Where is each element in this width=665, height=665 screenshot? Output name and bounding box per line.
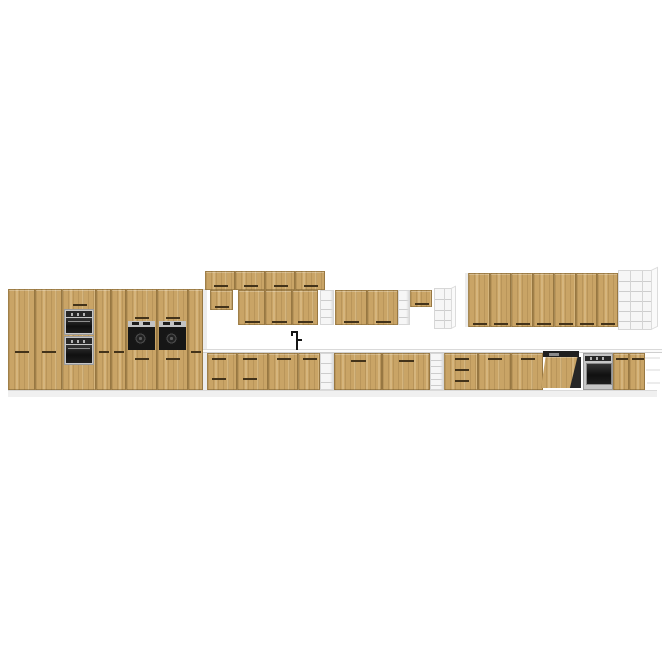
door-handle-groove bbox=[135, 317, 149, 319]
door-handle-groove bbox=[191, 351, 201, 353]
door-handle-groove bbox=[114, 351, 124, 353]
appliance-handle bbox=[68, 348, 90, 349]
wall-cabinet-door bbox=[554, 273, 576, 327]
base-cabinet-door bbox=[629, 353, 645, 390]
door-handle-groove bbox=[15, 351, 29, 353]
wall-cabinet-door bbox=[576, 273, 597, 327]
kitchen-product-image bbox=[0, 0, 665, 665]
base-drawer-stack bbox=[444, 353, 478, 390]
door-handle-groove bbox=[415, 303, 429, 305]
base-cabinet-door-wide bbox=[382, 353, 430, 390]
open-shelf-column bbox=[398, 290, 410, 325]
bookshelf-end-unit bbox=[618, 270, 652, 330]
door-handle-groove bbox=[632, 358, 644, 360]
door-handle-groove bbox=[455, 369, 469, 371]
door-handle-groove bbox=[212, 378, 226, 380]
door-handle-groove bbox=[274, 285, 288, 287]
door-handle-groove bbox=[537, 323, 551, 325]
shelf-flank bbox=[451, 286, 456, 329]
open-shelf-end-unit bbox=[434, 288, 452, 329]
shelf-line bbox=[619, 291, 651, 292]
top-wall-cabinet-door bbox=[295, 271, 325, 290]
tall-cabinet-door bbox=[111, 289, 126, 390]
door-handle-groove bbox=[42, 351, 56, 353]
compact-oven bbox=[159, 321, 186, 352]
wall-cabinet-door bbox=[335, 290, 367, 325]
tall-cabinet-door bbox=[96, 289, 111, 390]
door-handle-groove bbox=[399, 360, 414, 362]
wall-cabinet-door bbox=[367, 290, 398, 325]
door-handle-groove bbox=[473, 323, 487, 325]
door-handle-groove bbox=[245, 321, 260, 323]
base-drawer-unit bbox=[207, 353, 237, 390]
door-handle-groove bbox=[135, 358, 149, 360]
shelf-line bbox=[435, 299, 451, 300]
base-cabinet-door bbox=[511, 353, 543, 390]
door-handle-groove bbox=[166, 358, 180, 360]
appliance-button bbox=[174, 322, 181, 325]
shelf-side-shade bbox=[406, 291, 409, 324]
door-handle-groove bbox=[455, 358, 469, 360]
base-cabinet-door bbox=[268, 353, 298, 390]
appliance-control-strip bbox=[66, 338, 92, 344]
door-handle-groove bbox=[298, 321, 313, 323]
appliance-button bbox=[132, 322, 139, 325]
door-handle-groove bbox=[277, 358, 291, 360]
wall-cabinet-half-height bbox=[410, 290, 432, 307]
door-handle-groove bbox=[455, 380, 469, 382]
oven-knob-reflection bbox=[134, 332, 147, 345]
door-handle-groove bbox=[616, 358, 628, 360]
shelf-flank bbox=[651, 267, 658, 330]
end-shelf-ledge bbox=[647, 382, 660, 384]
end-shelf-ledge bbox=[646, 369, 660, 371]
appliance-handle bbox=[68, 321, 90, 322]
appliance-button bbox=[163, 322, 170, 325]
wall-cabinet-door bbox=[597, 273, 618, 327]
door-handle-groove bbox=[215, 306, 229, 308]
appliance-control-strip bbox=[66, 311, 92, 317]
open-shelf-column bbox=[430, 353, 444, 390]
faucet-spout-tip bbox=[291, 333, 293, 336]
shelf-line bbox=[619, 321, 651, 322]
microwave-oven bbox=[64, 309, 94, 335]
plinth bbox=[8, 390, 657, 397]
sink-base-unit bbox=[298, 353, 320, 390]
shelf-divider bbox=[444, 289, 445, 328]
dishwasher-display bbox=[549, 353, 559, 356]
appliance-button bbox=[143, 322, 150, 325]
wall-cabinet-door bbox=[292, 290, 318, 325]
door-handle-groove bbox=[99, 351, 109, 353]
faucet-handle bbox=[298, 339, 302, 341]
door-handle-groove bbox=[516, 323, 530, 325]
top-wall-cabinet-door bbox=[205, 271, 235, 290]
base-cabinet-door-wide bbox=[334, 353, 382, 390]
base-cabinet-door bbox=[613, 353, 629, 390]
door-handle-groove bbox=[601, 323, 615, 325]
door-handle-groove bbox=[73, 304, 87, 306]
base-drawer-unit bbox=[237, 353, 268, 390]
open-shelf-column bbox=[320, 353, 334, 390]
shelf-side-shade bbox=[440, 354, 443, 389]
door-handle-groove bbox=[304, 285, 318, 287]
wall-cabinet-door bbox=[511, 273, 533, 327]
shelf-line bbox=[619, 301, 651, 302]
faucet-stem bbox=[296, 333, 298, 350]
shelf-divider bbox=[642, 271, 643, 329]
tall-cabinet-door bbox=[8, 289, 35, 390]
wall-cabinet-door bbox=[490, 273, 511, 327]
door-handle-groove bbox=[244, 285, 258, 287]
oven-glass-door bbox=[586, 363, 612, 385]
door-handle-groove bbox=[243, 358, 257, 360]
door-handle-groove bbox=[559, 323, 573, 325]
oven-knob-reflection bbox=[165, 332, 178, 345]
oven-control-strip bbox=[585, 356, 611, 361]
shelf-side-shade bbox=[330, 291, 333, 324]
shelf-line bbox=[435, 320, 451, 321]
end-shelf-ledge bbox=[645, 357, 660, 359]
top-wall-cabinet-door bbox=[265, 271, 295, 290]
compact-oven bbox=[128, 321, 155, 352]
wall-cabinet-door bbox=[238, 290, 265, 325]
top-wall-cabinet-door bbox=[235, 271, 265, 290]
door-handle-groove bbox=[344, 321, 359, 323]
wall-cabinet-door bbox=[468, 273, 490, 327]
base-cabinet-door bbox=[478, 353, 511, 390]
door-handle-groove bbox=[214, 285, 228, 287]
shelf-line bbox=[619, 281, 651, 282]
shelf-line bbox=[619, 311, 651, 312]
open-shelf-column bbox=[320, 290, 334, 325]
door-handle-groove bbox=[376, 321, 391, 323]
wall-cabinet-short bbox=[210, 290, 233, 310]
shelf-divider bbox=[630, 271, 631, 329]
built-in-oven bbox=[583, 353, 613, 390]
tower-built-in-oven bbox=[64, 336, 94, 365]
door-handle-groove bbox=[166, 317, 180, 319]
door-handle-groove bbox=[494, 323, 508, 325]
door-handle-groove bbox=[303, 358, 317, 360]
faucet bbox=[291, 331, 303, 351]
door-handle-groove bbox=[272, 321, 287, 323]
door-handle-groove bbox=[580, 323, 594, 325]
door-handle-groove bbox=[351, 360, 366, 362]
wall-cabinet-door bbox=[265, 290, 292, 325]
door-handle-groove bbox=[488, 358, 502, 360]
door-handle-groove bbox=[521, 358, 535, 360]
tall-cabinet-door bbox=[35, 289, 62, 390]
shelf-line bbox=[435, 310, 451, 311]
dishwasher-open-door bbox=[541, 351, 583, 390]
tall-cabinet-door bbox=[188, 289, 203, 390]
shelf-side-shade bbox=[330, 354, 333, 389]
wall-cabinet-door bbox=[533, 273, 554, 327]
door-handle-groove bbox=[243, 378, 257, 380]
door-handle-groove bbox=[212, 358, 226, 360]
